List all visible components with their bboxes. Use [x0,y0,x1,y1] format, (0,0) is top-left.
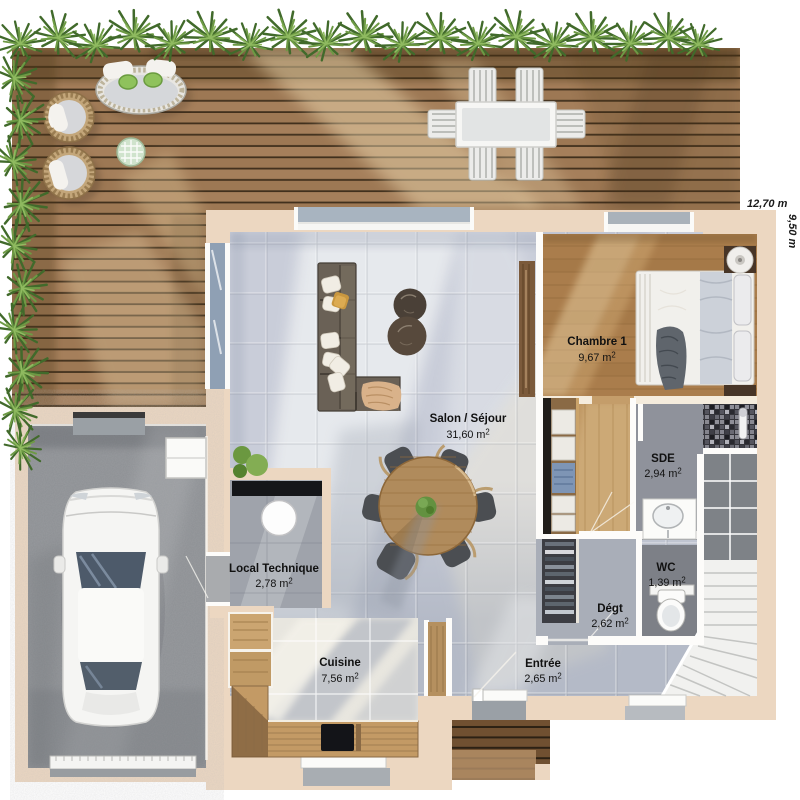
svg-text:2,62 m2: 2,62 m2 [591,617,628,631]
svg-text:2,94 m2: 2,94 m2 [644,467,681,481]
svg-text:7,56 m2: 7,56 m2 [321,672,358,686]
svg-text:SDE: SDE [651,453,675,465]
svg-text:Salon / Séjour: Salon / Séjour [430,413,507,425]
svg-text:31,60 m2: 31,60 m2 [446,428,489,442]
svg-text:WC: WC [656,562,675,574]
svg-text:Dégt: Dégt [597,603,623,615]
svg-text:1,39 m2: 1,39 m2 [648,576,685,590]
svg-text:12,70 m: 12,70 m [747,198,788,210]
svg-text:Chambre 1: Chambre 1 [567,336,627,348]
svg-text:9,67 m2: 9,67 m2 [578,351,615,365]
svg-text:Local Technique: Local Technique [229,563,319,575]
svg-text:2,65 m2: 2,65 m2 [524,672,561,686]
svg-text:9,50 m: 9,50 m [786,214,798,248]
svg-text:2,78 m2: 2,78 m2 [255,577,292,591]
svg-text:Entrée: Entrée [525,658,561,670]
svg-text:Cuisine: Cuisine [319,657,361,669]
